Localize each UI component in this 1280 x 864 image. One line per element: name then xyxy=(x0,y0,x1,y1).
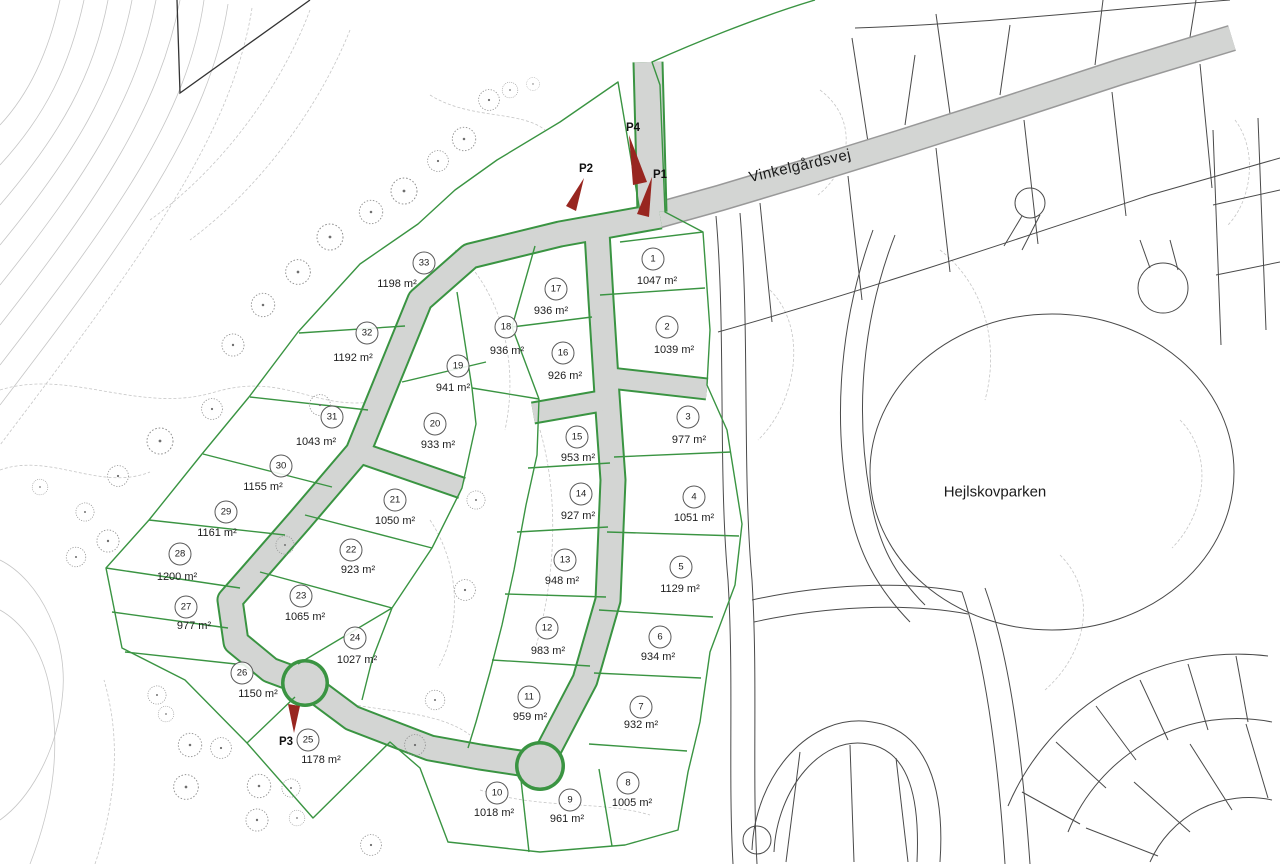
lot-number-badge: 32 xyxy=(356,322,379,345)
lot-number-badge: 29 xyxy=(215,501,238,524)
lot-area-label: 1178 m² xyxy=(301,754,341,766)
lot-number: 20 xyxy=(430,419,441,430)
lot-number-badge: 6 xyxy=(649,626,672,649)
viewpoint-flag-label: P1 xyxy=(653,169,667,181)
lot-number: 11 xyxy=(524,692,534,703)
lot-number: 19 xyxy=(453,361,464,372)
lot-number: 29 xyxy=(221,507,232,518)
lot-number-badge: 8 xyxy=(617,772,640,795)
lot-number-badge: 33 xyxy=(413,252,436,275)
lot-area-label: 977 m² xyxy=(177,620,211,632)
lot-number: 1 xyxy=(650,254,655,265)
lot-number: 23 xyxy=(296,591,307,602)
lot-number-badge: 17 xyxy=(545,278,568,301)
park-name-label: Hejlskovparken xyxy=(944,484,1047,501)
lot-area-label: 1150 m² xyxy=(238,688,278,700)
lot-number: 13 xyxy=(560,555,571,566)
lot-number: 8 xyxy=(625,778,630,789)
lot-number: 17 xyxy=(551,284,562,295)
lot-area-label: 961 m² xyxy=(550,813,584,825)
lot-number-badge: 15 xyxy=(566,426,589,449)
lot-number-badge: 13 xyxy=(554,549,577,572)
lot-number: 12 xyxy=(542,623,553,634)
lot-area-label: 1027 m² xyxy=(337,654,377,666)
lot-number: 3 xyxy=(685,412,690,423)
lot-number: 24 xyxy=(350,633,361,644)
lot-number: 9 xyxy=(567,795,572,806)
lot-number-badge: 19 xyxy=(447,355,470,378)
lot-number: 33 xyxy=(419,258,430,269)
lot-number: 28 xyxy=(175,549,186,560)
lot-number-badge: 23 xyxy=(290,585,313,608)
lot-area-label: 1198 m² xyxy=(377,278,417,290)
lot-area-label: 1200 m² xyxy=(157,571,197,583)
lot-area-label: 927 m² xyxy=(561,510,595,522)
lot-number-badge: 14 xyxy=(570,483,593,506)
lot-area-label: 1155 m² xyxy=(243,481,283,493)
lot-area-label: 1161 m² xyxy=(197,527,237,539)
lot-area-label: 977 m² xyxy=(672,434,706,446)
lot-number-badge: 27 xyxy=(175,596,198,619)
lot-area-label: 934 m² xyxy=(641,651,675,663)
lot-number: 31 xyxy=(327,412,338,423)
lot-area-label: 926 m² xyxy=(548,370,582,382)
lot-number: 15 xyxy=(572,432,583,443)
site-plan-map: Vinkelgårdsvej Hejlskovparken 1 1047 m² … xyxy=(0,0,1280,864)
lot-number-badge: 22 xyxy=(340,539,363,562)
lot-area-label: 1018 m² xyxy=(474,807,514,819)
lot-area-label: 948 m² xyxy=(545,575,579,587)
lot-number-badge: 10 xyxy=(486,782,509,805)
lot-number-badge: 26 xyxy=(231,662,254,685)
lot-number: 27 xyxy=(181,602,192,613)
lot-number: 5 xyxy=(678,562,683,573)
lot-number-badge: 18 xyxy=(495,316,518,339)
lot-number-badge: 2 xyxy=(656,316,679,339)
lot-number-badge: 12 xyxy=(536,617,559,640)
lot-area-label: 936 m² xyxy=(490,345,524,357)
lot-number: 30 xyxy=(276,461,287,472)
lot-number-badge: 28 xyxy=(169,543,192,566)
lot-area-label: 936 m² xyxy=(534,305,568,317)
lot-area-label: 1065 m² xyxy=(285,611,325,623)
lot-area-label: 933 m² xyxy=(421,439,455,451)
lot-number-badge: 7 xyxy=(630,696,653,719)
lot-area-label: 959 m² xyxy=(513,711,547,723)
lot-number: 25 xyxy=(303,735,314,746)
lot-area-label: 1047 m² xyxy=(637,275,677,287)
lot-area-label: 953 m² xyxy=(561,452,595,464)
lot-area-label: 983 m² xyxy=(531,645,565,657)
lot-number-badge: 5 xyxy=(670,556,693,579)
lot-number-badge: 20 xyxy=(424,413,447,436)
lot-number: 16 xyxy=(558,348,569,359)
lot-number: 22 xyxy=(346,545,357,556)
lot-number: 4 xyxy=(691,492,696,503)
lot-area-label: 1039 m² xyxy=(654,344,694,356)
lot-number-badge: 4 xyxy=(683,486,706,509)
lot-number-badge: 31 xyxy=(321,406,344,429)
lot-number-badge: 9 xyxy=(559,789,582,812)
lot-number: 6 xyxy=(657,632,662,643)
road-name-label: Vinkelgårdsvej xyxy=(747,146,852,186)
lot-area-label: 1043 m² xyxy=(296,436,336,448)
viewpoint-flag-label: P2 xyxy=(579,163,593,175)
lot-number-badge: 24 xyxy=(344,627,367,650)
lot-number-badge: 25 xyxy=(297,729,320,752)
viewpoint-flag-label: P3 xyxy=(279,736,293,748)
lot-number-badge: 1 xyxy=(642,248,665,271)
lot-number-badge: 30 xyxy=(270,455,293,478)
lot-area-label: 1129 m² xyxy=(660,583,700,595)
lot-area-label: 923 m² xyxy=(341,564,375,576)
lot-area-label: 941 m² xyxy=(436,382,470,394)
lot-number: 10 xyxy=(492,788,503,799)
lot-number: 7 xyxy=(638,702,643,713)
lot-number: 2 xyxy=(664,322,669,333)
lot-number: 21 xyxy=(390,495,401,506)
lot-area-label: 932 m² xyxy=(624,719,658,731)
lot-number-badge: 21 xyxy=(384,489,407,512)
lot-area-label: 1050 m² xyxy=(375,515,415,527)
lot-area-label: 1051 m² xyxy=(674,512,714,524)
lot-number: 18 xyxy=(501,322,512,333)
lot-number: 32 xyxy=(362,328,373,339)
lot-number-badge: 11 xyxy=(518,686,541,709)
lot-number: 14 xyxy=(576,489,587,500)
lot-number: 26 xyxy=(237,668,248,679)
lot-number-badge: 16 xyxy=(552,342,575,365)
labels-layer: Vinkelgårdsvej Hejlskovparken 1 1047 m² … xyxy=(0,0,1280,864)
lot-area-label: 1005 m² xyxy=(612,797,652,809)
lot-area-label: 1192 m² xyxy=(333,352,373,364)
viewpoint-flag-label: P4 xyxy=(626,122,640,134)
lot-number-badge: 3 xyxy=(677,406,700,429)
